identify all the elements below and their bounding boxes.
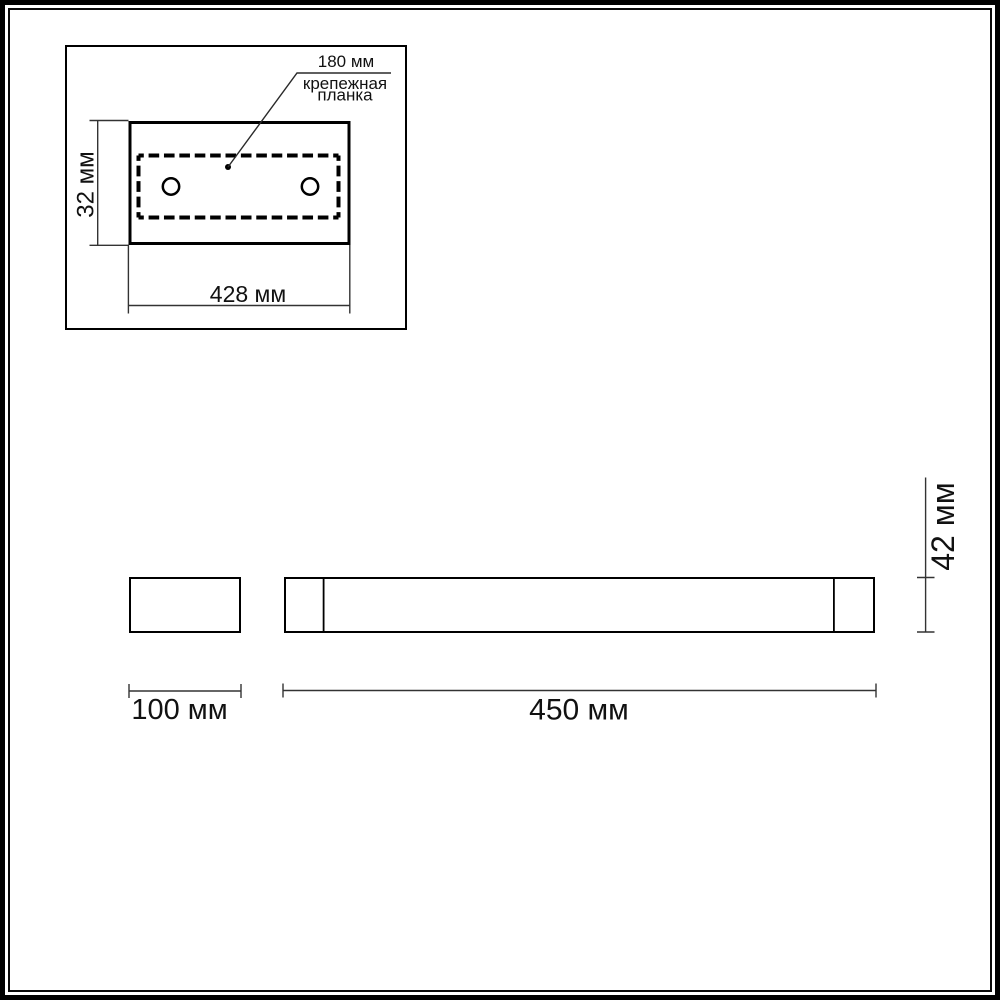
svg-text:42 мм: 42 мм <box>925 482 961 570</box>
svg-text:428 мм: 428 мм <box>210 281 286 307</box>
svg-text:планка: планка <box>317 86 373 105</box>
svg-text:180 мм: 180 мм <box>318 52 374 71</box>
svg-text:32 мм: 32 мм <box>73 151 100 217</box>
svg-text:450 мм: 450 мм <box>529 694 629 727</box>
svg-text:100 мм: 100 мм <box>131 694 227 726</box>
